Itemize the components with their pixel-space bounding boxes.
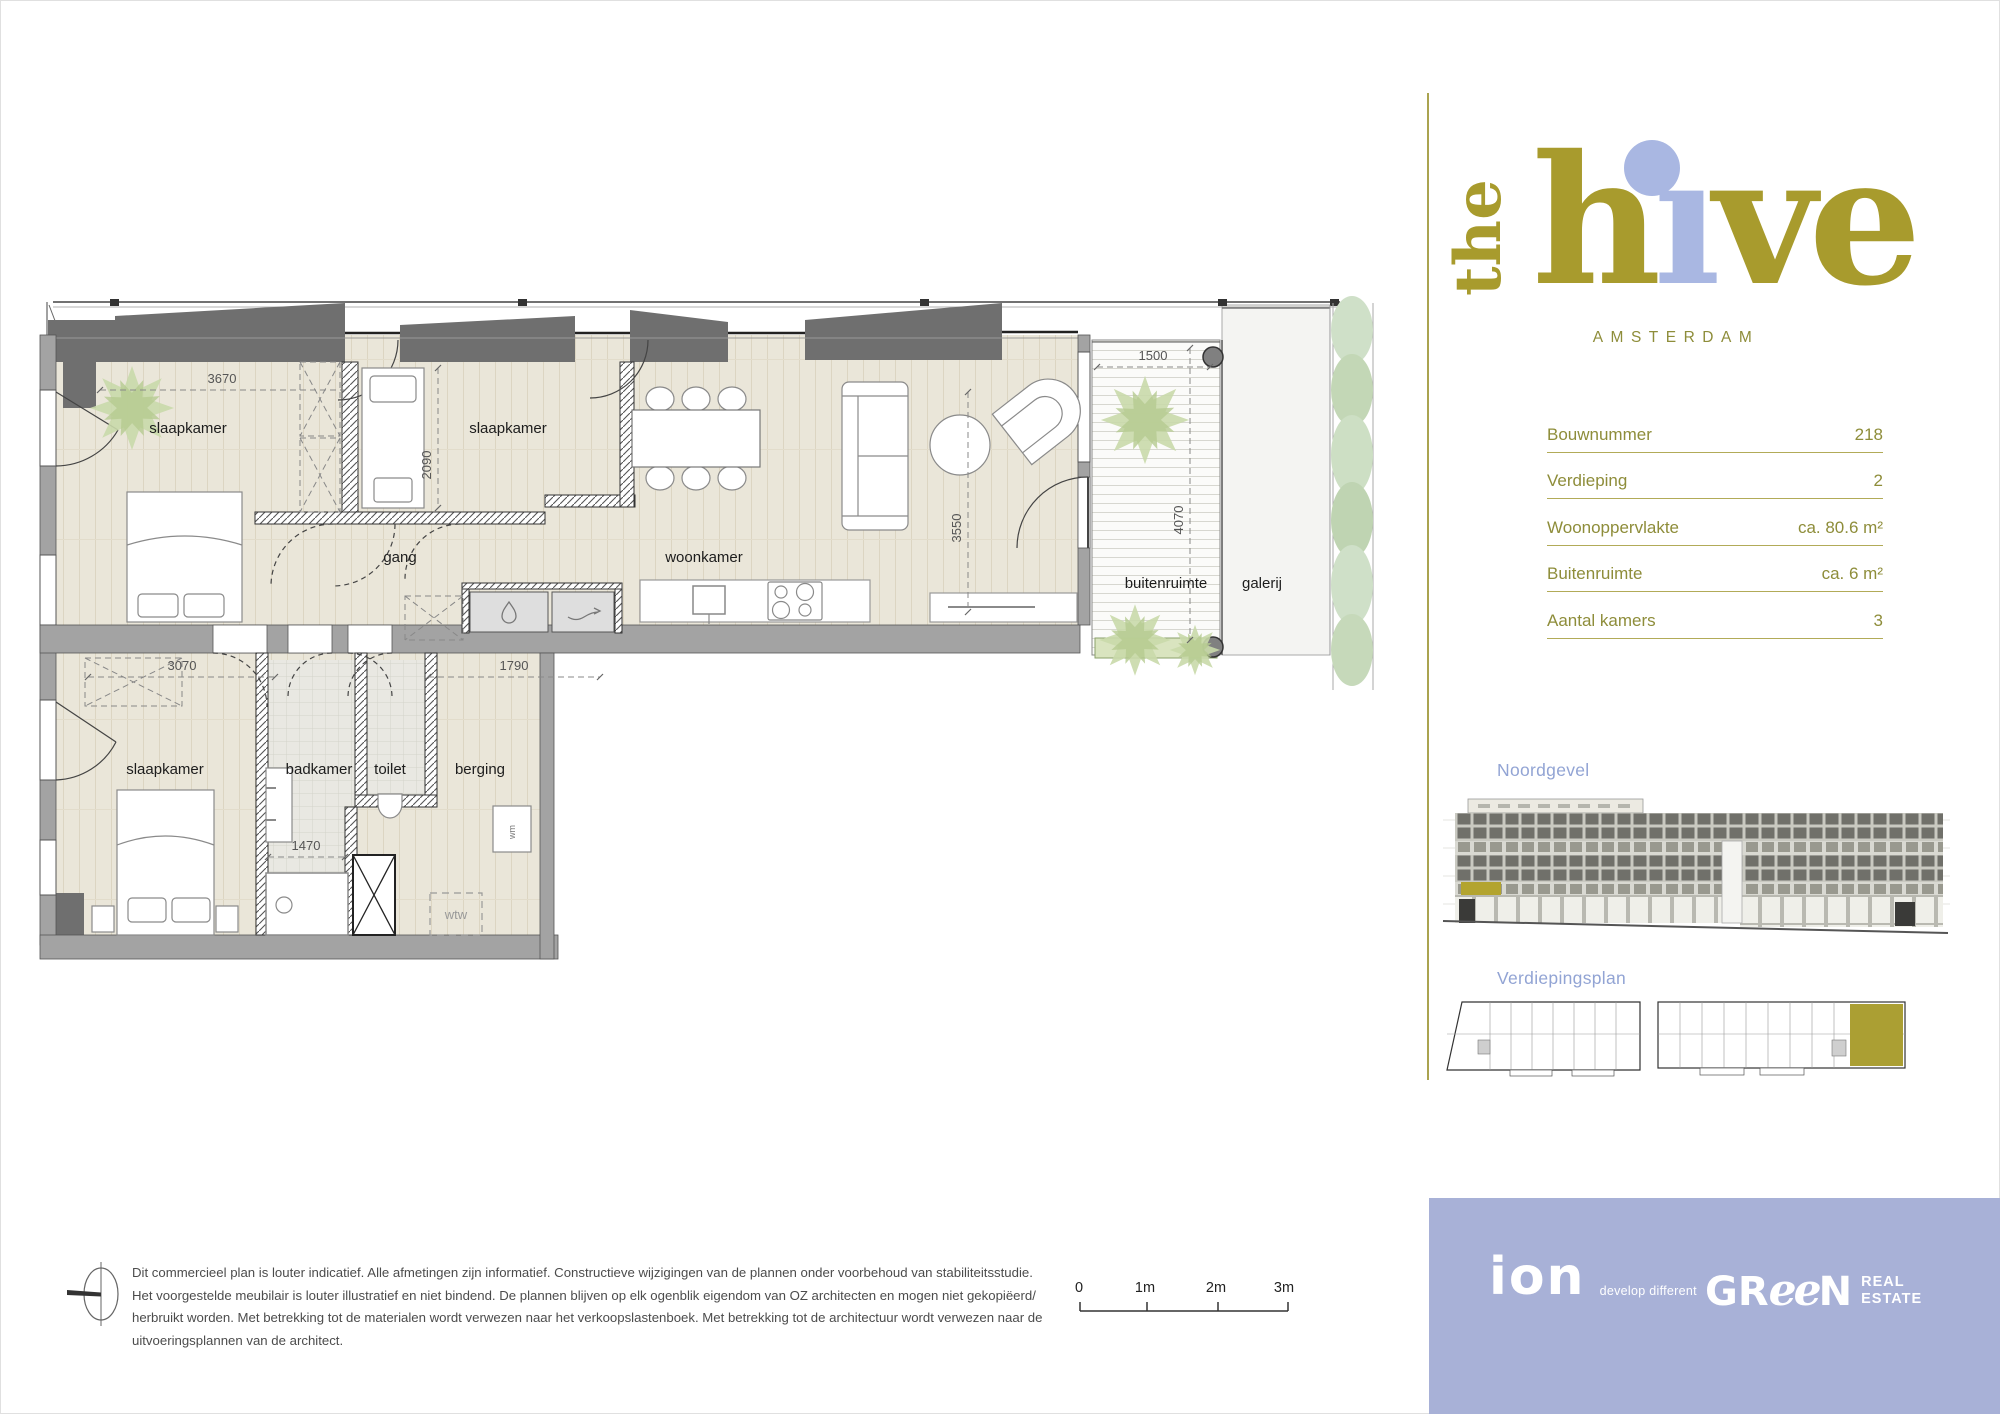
label-galerij: galerij	[1242, 575, 1282, 592]
table-row: Buitenruimte ca. 6 m²	[1547, 546, 1883, 593]
label-wtw: wtw	[444, 907, 468, 922]
dim-1500: 1500	[1139, 348, 1168, 363]
highlighted-unit-elevation	[1461, 882, 1501, 895]
detail-label: Aantal kamers	[1547, 611, 1656, 631]
plant-icon	[1101, 376, 1189, 464]
logo-city: AMSTERDAM	[1593, 329, 1760, 346]
disclaimer-line: herbruikt worden. Met betrekking tot de …	[132, 1307, 812, 1330]
the-hive-logo: the hıve AMSTERDAM	[1441, 116, 1914, 346]
green-n: N	[1819, 1269, 1852, 1315]
disclaimer-line: Dit commercieel plan is louter indicatie…	[132, 1262, 812, 1285]
dim-4070: 4070	[1171, 506, 1186, 535]
elevation-drawing	[1443, 799, 1950, 933]
logo-the: the	[1441, 179, 1516, 296]
compass-icon	[67, 1262, 118, 1326]
balcony-deck	[1092, 340, 1220, 655]
ion-wordmark: ion	[1489, 1254, 1586, 1300]
bed-single	[362, 368, 424, 508]
table-row: Verdieping 2	[1547, 453, 1883, 500]
detail-value: 218	[1855, 425, 1883, 445]
scale-2m: 2m	[1206, 1280, 1226, 1296]
bed-double-1	[127, 492, 242, 622]
unit-details-table: Bouwnummer 218 Verdieping 2 Woonoppervla…	[1547, 406, 1883, 639]
ion-logo: ion develop different	[1489, 1254, 1697, 1300]
label-gang: gang	[383, 549, 416, 566]
detail-value: ca. 6 m²	[1822, 564, 1883, 584]
detail-label: Woonoppervlakte	[1547, 518, 1679, 538]
footer-brand-band: ion develop different GReeN REAL ESTATE	[1429, 1198, 2000, 1414]
shaft	[353, 855, 395, 935]
scale-0: 0	[1075, 1280, 1083, 1296]
apartment-plan: 3670 2090 3550 1500 4070 3070 1790 1470 …	[40, 296, 1373, 959]
estate-line: ESTATE	[1861, 1291, 1922, 1307]
scale-1m: 1m	[1135, 1280, 1155, 1296]
dim-2090: 2090	[419, 451, 434, 480]
brochure-page: 3670 2090 3550 1500 4070 3070 1790 1470 …	[0, 0, 2000, 1414]
scale-3m: 3m	[1274, 1280, 1294, 1296]
detail-label: Bouwnummer	[1547, 425, 1652, 445]
label-buitenruimte: buitenruimte	[1125, 575, 1208, 592]
kitchen-counter	[640, 580, 870, 624]
label-wm: wm	[507, 825, 517, 840]
disclaimer-text: Dit commercieel plan is louter indicatie…	[132, 1262, 812, 1352]
section-title-noordgevel: Noordgevel	[1497, 760, 1590, 781]
hedge	[1331, 296, 1373, 690]
dim-3550: 3550	[949, 514, 964, 543]
disclaimer-line: uitvoeringsplannen van de architect.	[132, 1330, 812, 1353]
plant-icon	[1170, 625, 1220, 675]
label-badkamer: badkamer	[286, 761, 353, 778]
disclaimer-line: Het voorgestelde meubilair is louter ill…	[132, 1285, 812, 1308]
washbasin	[266, 768, 292, 842]
sofa	[842, 382, 908, 530]
section-title-verdiepingsplan: Verdiepingsplan	[1497, 968, 1626, 989]
floor-overview-plans	[1447, 1002, 1905, 1076]
logo-i-dot	[1624, 140, 1680, 196]
real-estate-text: REAL ESTATE	[1861, 1274, 1922, 1308]
label-slaapkamer-3: slaapkamer	[126, 761, 204, 778]
green-real-estate-logo: GReeN REAL ESTATE	[1705, 1272, 1922, 1311]
plant-icon	[90, 366, 174, 450]
plant-icon	[1099, 604, 1170, 675]
table-row: Bouwnummer 218	[1547, 406, 1883, 453]
green-wordmark: GReeN	[1705, 1272, 1852, 1311]
ion-tagline: develop different	[1600, 1284, 1697, 1298]
sideboard	[930, 593, 1077, 622]
highlighted-unit-plan	[1850, 1004, 1903, 1066]
label-woonkamer: woonkamer	[664, 549, 743, 566]
technical-closets	[470, 592, 614, 632]
mini-plan-west	[1447, 1002, 1640, 1070]
detail-value: 3	[1874, 611, 1883, 631]
round-table	[930, 415, 990, 475]
detail-value: 2	[1874, 471, 1883, 491]
label-slaapkamer-2: slaapkamer	[469, 420, 547, 437]
wc	[378, 794, 402, 818]
dim-3670: 3670	[208, 371, 237, 386]
label-slaapkamer-1: slaapkamer	[149, 420, 227, 437]
dining-table	[632, 387, 760, 490]
scale-bar: 0 1m 2m 3m	[1075, 1280, 1294, 1311]
detail-value: ca. 80.6 m²	[1798, 518, 1883, 538]
dim-1790: 1790	[500, 658, 529, 673]
table-row: Woonoppervlakte ca. 80.6 m²	[1547, 499, 1883, 546]
table-row: Aantal kamers 3	[1547, 592, 1883, 639]
green-ee: ee	[1769, 1265, 1819, 1316]
dim-3070: 3070	[168, 658, 197, 673]
dim-1470: 1470	[292, 838, 321, 853]
real-line: REAL	[1861, 1274, 1904, 1290]
green-gr: GR	[1705, 1269, 1769, 1315]
logo-hive: hıve	[1532, 116, 1914, 325]
shower	[266, 873, 348, 935]
detail-label: Buitenruimte	[1547, 564, 1642, 584]
logo-ve: ve	[1709, 116, 1914, 325]
detail-label: Verdieping	[1547, 471, 1627, 491]
label-toilet: toilet	[374, 761, 407, 778]
gallery-floor	[1222, 305, 1330, 655]
label-berging: berging	[455, 761, 505, 778]
